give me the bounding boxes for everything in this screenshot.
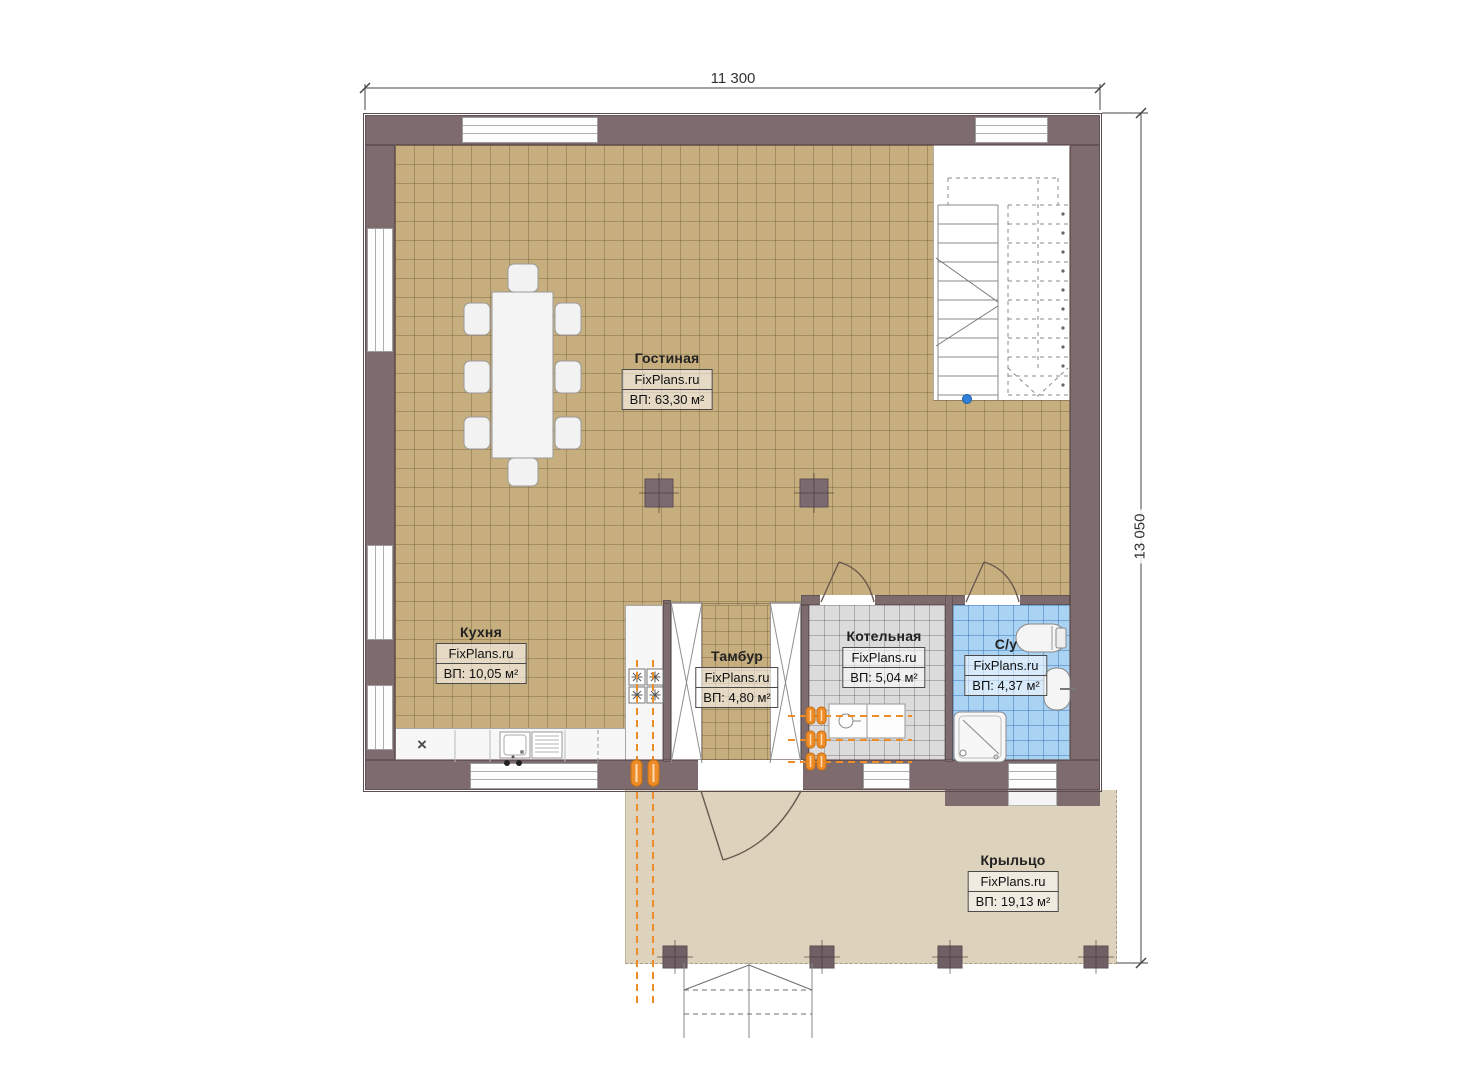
bathroom-window-sill [1008,790,1057,806]
porch-steps [684,963,812,1038]
dimension-height: 13 050 [1131,510,1148,564]
wall-stub-left [945,790,1008,806]
room-name: Кухня [436,624,527,640]
window-top-right [975,117,1048,143]
wall-right [1070,145,1100,760]
watermark-link[interactable]: FixPlans.ru [964,655,1047,676]
appliance-x-marker: × [398,730,446,760]
entrance-door-opening [698,760,803,790]
room-name: Гостиная [622,350,713,366]
window-bathroom [1008,763,1057,789]
wall-stub-right [1057,790,1100,806]
window-boiler [863,763,910,789]
staircase-area [933,145,1070,400]
room-label-bathroom: С/у FixPlans.ru ВП: 4,37 м² [964,636,1047,696]
window-left-lower [367,685,393,750]
wall-tambour-boiler [801,605,809,762]
wall-boiler-bathroom [945,595,953,762]
watermark-link[interactable]: FixPlans.ru [695,667,778,688]
window-kitchen [470,763,598,789]
room-label-tambour: Тамбур FixPlans.ru ВП: 4,80 м² [695,648,778,708]
dimension-width: 11 300 [707,70,760,87]
room-area: ВП: 4,37 м² [964,675,1047,696]
room-area: ВП: 4,80 м² [695,687,778,708]
room-area: ВП: 10,05 м² [436,663,527,684]
window-top-left [462,117,598,143]
boiler-door-opening [820,595,875,605]
room-label-living: Гостиная FixPlans.ru ВП: 63,30 м² [622,350,713,410]
room-label-porch: Крыльцо FixPlans.ru ВП: 19,13 м² [968,852,1059,912]
room-label-boiler: Котельная FixPlans.ru ВП: 5,04 м² [842,628,925,688]
watermark-link[interactable]: FixPlans.ru [622,369,713,390]
kitchen-counter-return [625,605,663,762]
bathroom-door-opening [965,595,1020,605]
room-area: ВП: 19,13 м² [968,891,1059,912]
room-name: С/у [964,636,1047,652]
window-left-middle [367,545,393,640]
room-name: Тамбур [695,648,778,664]
room-area: ВП: 63,30 м² [622,389,713,410]
watermark-link[interactable]: FixPlans.ru [968,871,1059,892]
watermark-link[interactable]: FixPlans.ru [436,643,527,664]
room-label-kitchen: Кухня FixPlans.ru ВП: 10,05 м² [436,624,527,684]
watermark-link[interactable]: FixPlans.ru [842,647,925,668]
room-area: ВП: 5,04 м² [842,667,925,688]
floor-plan-canvas: × [0,0,1474,1080]
window-left-upper [367,228,393,352]
room-name: Крыльцо [968,852,1059,868]
room-name: Котельная [842,628,925,644]
wall-kitchen-tambour [663,600,671,762]
